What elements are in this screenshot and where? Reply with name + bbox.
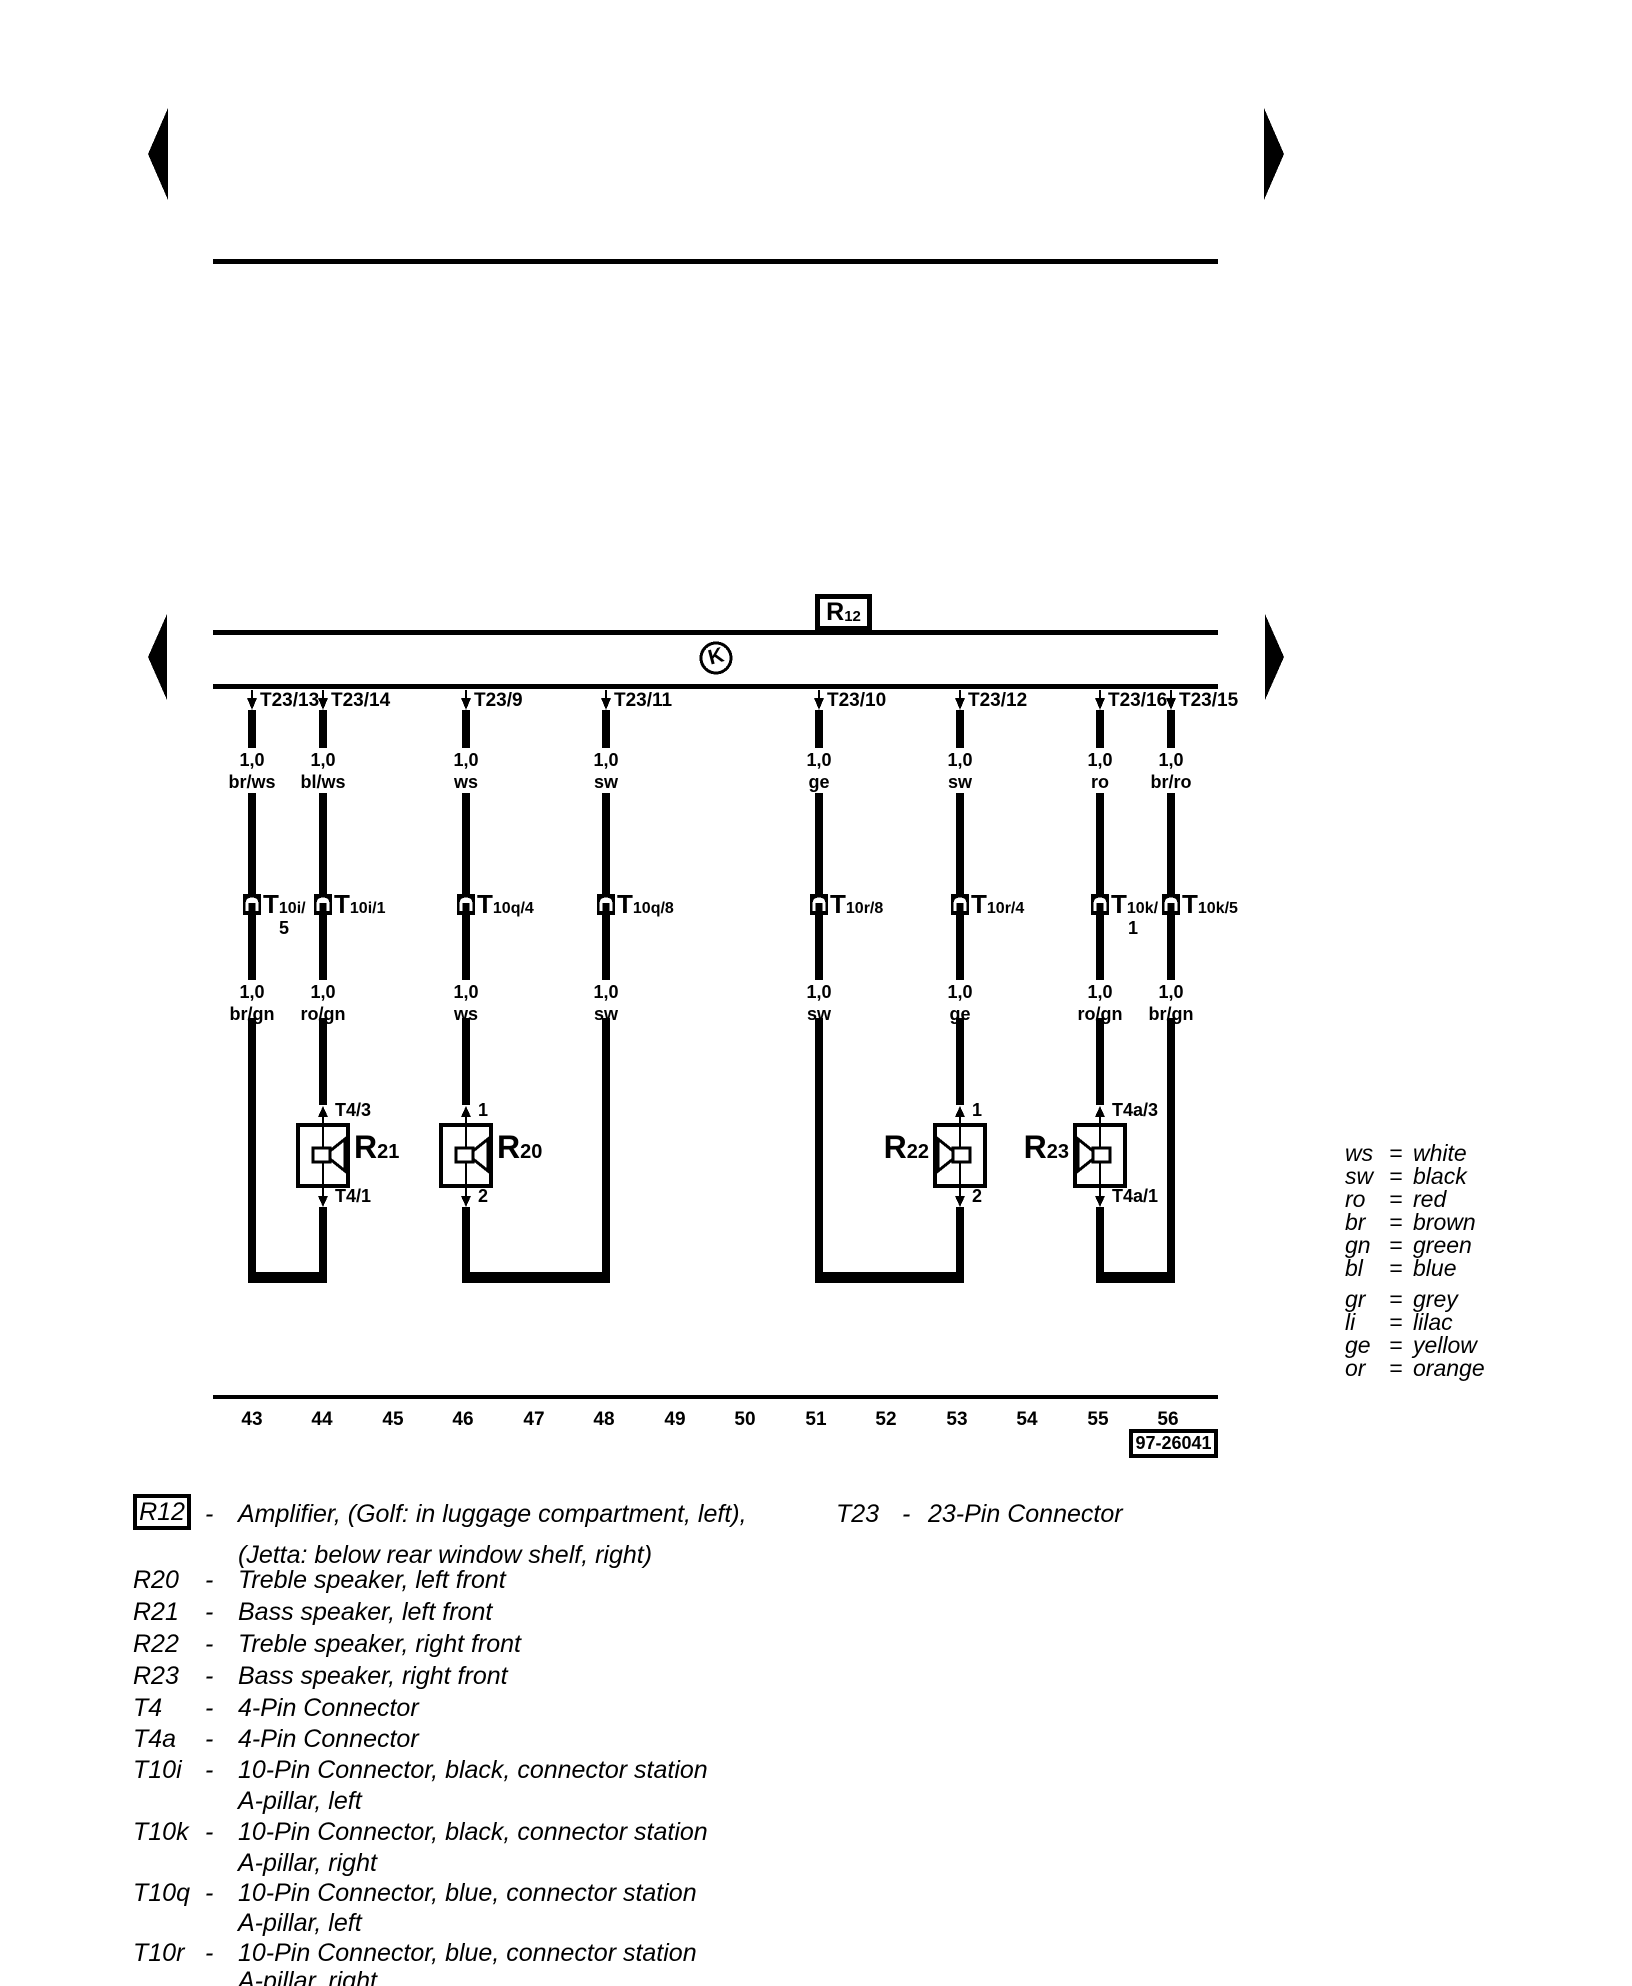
connector-label-prefix: T	[830, 889, 846, 919]
legend-dash: -	[205, 1696, 213, 1721]
connector-label: T10q/4	[477, 891, 534, 917]
wire-segment	[1167, 1018, 1175, 1283]
link-bar	[462, 1272, 610, 1283]
bottom-links	[248, 1272, 1175, 1283]
track-number: 51	[805, 1410, 826, 1429]
color-legend-row: ge=yellow	[1345, 1334, 1477, 1357]
wire-color: ge	[808, 773, 829, 791]
track-number: 48	[593, 1410, 614, 1429]
wire-gauge: 1,0	[239, 751, 264, 769]
speaker-name-r21: R21	[354, 1131, 399, 1163]
wiring-diagram-page: R12 K T23/13 T23/14 T23/9 T23/11 T23/10 …	[0, 0, 1632, 1986]
legend-dash: -	[205, 1820, 213, 1845]
wire-segment	[956, 1018, 964, 1105]
wire-gauge: 1,0	[806, 983, 831, 1001]
arrowhead-down-icon	[955, 1196, 965, 1207]
arrowhead-down-icon	[1095, 1196, 1105, 1207]
connector-t10k1-icon	[1091, 894, 1109, 915]
connector-t10q8-icon	[597, 894, 615, 915]
legend-key: R20	[133, 1568, 179, 1593]
pin-label: T23/12	[968, 691, 1027, 710]
legend-desc: A-pillar, right	[238, 1969, 377, 1986]
legend-dash: -	[205, 1568, 213, 1593]
color-name: green	[1413, 1234, 1472, 1257]
r12-sub: 12	[844, 609, 861, 624]
wire-segment	[1096, 1207, 1104, 1283]
wire-segment	[956, 915, 964, 980]
connector-label-rest: 10k/	[1127, 900, 1158, 917]
wire-color: ro/gn	[1078, 1005, 1123, 1023]
legend-key-r12-box: R12	[133, 1494, 191, 1530]
legend-dash: -	[205, 1632, 213, 1657]
connector-t10r4-icon	[951, 894, 969, 915]
track-number: 43	[241, 1410, 262, 1429]
legend-desc: 23-Pin Connector	[928, 1502, 1123, 1527]
wire-segment	[462, 1018, 470, 1105]
color-name: lilac	[1413, 1311, 1453, 1334]
connector-label-prefix: T	[971, 889, 987, 919]
speaker-name-sub: 22	[907, 1141, 929, 1163]
speaker-name-prefix: R	[1024, 1129, 1047, 1165]
equals-sign: =	[1389, 1165, 1413, 1188]
color-abbr: li	[1345, 1311, 1389, 1334]
arrowhead-down-icon	[247, 698, 257, 710]
speaker-pin-top: T4a/3	[1112, 1101, 1158, 1119]
color-name: grey	[1413, 1288, 1458, 1311]
legend-key: T10i	[133, 1758, 182, 1783]
equals-sign: =	[1389, 1142, 1413, 1165]
arrowhead-down-icon	[814, 698, 824, 710]
color-abbr: ge	[1345, 1334, 1389, 1357]
legend-key: T10r	[133, 1941, 184, 1966]
color-legend-row: br=brown	[1345, 1211, 1476, 1234]
track-number: 46	[452, 1410, 473, 1429]
speaker-name-prefix: R	[884, 1129, 907, 1165]
color-legend-row: bl=blue	[1345, 1257, 1456, 1280]
connector-t10q4-icon	[457, 894, 475, 915]
legend-dash: -	[205, 1727, 213, 1752]
legend-desc: A-pillar, right	[238, 1851, 377, 1876]
legend-key: T4	[133, 1696, 162, 1721]
wire-segment	[602, 915, 610, 980]
track-number: 53	[946, 1410, 967, 1429]
wire-segment	[815, 710, 823, 748]
legend-dash: -	[205, 1941, 213, 1966]
bus-arrow-left-icon	[148, 614, 167, 700]
connector-label-prefix: T	[263, 889, 279, 919]
equals-sign: =	[1389, 1234, 1413, 1257]
wire-color: ge	[949, 1005, 970, 1023]
pin-label: T23/11	[614, 691, 672, 710]
track-number: 47	[523, 1410, 544, 1429]
arrowhead-down-icon	[601, 698, 611, 710]
wire-color: ro	[1091, 773, 1109, 791]
track-number: 56	[1157, 1410, 1178, 1429]
equals-sign: =	[1389, 1288, 1413, 1311]
connector-t10k5-icon	[1162, 894, 1180, 915]
color-name: red	[1413, 1188, 1446, 1211]
color-name: yellow	[1413, 1334, 1477, 1357]
color-abbr: or	[1345, 1357, 1389, 1380]
wire-segment	[815, 793, 823, 894]
legend-dash: -	[205, 1664, 213, 1689]
bus-arrow-right-icon	[1265, 614, 1284, 700]
color-name: orange	[1413, 1357, 1485, 1380]
wire-segment	[1167, 710, 1175, 748]
legend-desc: Treble speaker, right front	[238, 1632, 521, 1657]
pin-label: T23/16	[1108, 691, 1167, 710]
color-abbr: sw	[1345, 1165, 1389, 1188]
wire-color: sw	[594, 1005, 618, 1023]
legend-dash: -	[205, 1502, 213, 1527]
legend-desc: 10-Pin Connector, blue, connector statio…	[238, 1941, 697, 1966]
speaker-pin-top: 1	[972, 1101, 982, 1119]
wire-color: ro/gn	[301, 1005, 346, 1023]
pin-label: T23/10	[827, 691, 886, 710]
track-number: 52	[875, 1410, 896, 1429]
wire-gauge: 1,0	[1158, 983, 1183, 1001]
connector-label: T10q/8	[617, 891, 674, 917]
color-name: black	[1413, 1165, 1467, 1188]
legend-desc: 10-Pin Connector, black, connector stati…	[238, 1758, 708, 1783]
wire-segment	[602, 793, 610, 894]
color-abbr: br	[1345, 1211, 1389, 1234]
color-abbr: ro	[1345, 1188, 1389, 1211]
wire-segment	[319, 710, 327, 748]
wire-gauge: 1,0	[239, 983, 264, 1001]
wire-color: br/gn	[230, 1005, 275, 1023]
wire-segment	[1096, 793, 1104, 894]
wire-segment	[462, 1207, 470, 1283]
color-name: blue	[1413, 1257, 1456, 1280]
color-name: white	[1413, 1142, 1467, 1165]
color-legend-row: or=orange	[1345, 1357, 1485, 1380]
equals-sign: =	[1389, 1188, 1413, 1211]
color-legend-row: li=lilac	[1345, 1311, 1453, 1334]
color-abbr: gn	[1345, 1234, 1389, 1257]
wire-gauge: 1,0	[310, 983, 335, 1001]
wire-segment	[319, 793, 327, 894]
wire-gauge: 1,0	[947, 983, 972, 1001]
wire-segment	[815, 1018, 823, 1283]
bus-line-top	[213, 630, 1218, 635]
legend-desc: (Jetta: below rear window shelf, right)	[238, 1543, 652, 1568]
legend-key: T4a	[133, 1727, 176, 1752]
connector-label: T10k/5	[1182, 891, 1238, 917]
legend-desc: Amplifier, (Golf: in luggage compartment…	[238, 1502, 747, 1527]
diagram-number-box: 97-26041	[1129, 1429, 1218, 1458]
connector-label: T10i/	[263, 891, 306, 917]
wire-color: sw	[948, 773, 972, 791]
wire-gauge: 1,0	[1158, 751, 1183, 769]
connector-label-rest: 10q/8	[633, 900, 674, 917]
amplifier-box-label: R12	[815, 594, 872, 631]
legend-key: R23	[133, 1664, 179, 1689]
wire-gauge: 1,0	[947, 751, 972, 769]
wire-segment	[462, 915, 470, 980]
wire-color: sw	[594, 773, 618, 791]
color-legend-row: gn=green	[1345, 1234, 1472, 1257]
wire-color: ws	[454, 773, 478, 791]
legend-desc: 10-Pin Connector, blue, connector statio…	[238, 1881, 697, 1906]
wire-color: sw	[807, 1005, 831, 1023]
wire-color: br/gn	[1149, 1005, 1194, 1023]
speaker-name-sub: 23	[1047, 1141, 1069, 1163]
speaker-name-prefix: R	[354, 1129, 377, 1165]
speaker-name-r22: R22	[884, 1131, 929, 1163]
wire-segment	[1096, 710, 1104, 748]
wire-gauge: 1,0	[1087, 983, 1112, 1001]
connector-label-prefix: T	[334, 889, 350, 919]
speaker-pin-top: 1	[478, 1101, 488, 1119]
connector-label-rest: 10r/8	[846, 900, 883, 917]
arrowhead-down-icon	[318, 1196, 328, 1207]
connector-label-prefix: T	[617, 889, 633, 919]
wire-segment	[815, 915, 823, 980]
legend-dash: -	[205, 1881, 213, 1906]
speaker-name-r23: R23	[1024, 1131, 1069, 1163]
arrowhead-down-icon	[955, 698, 965, 710]
track-number: 44	[311, 1410, 332, 1429]
speaker-name-prefix: R	[497, 1129, 520, 1165]
wire-color: ws	[454, 1005, 478, 1023]
wire-gauge: 1,0	[453, 983, 478, 1001]
wire-segment	[248, 915, 256, 980]
link-bar	[1096, 1272, 1175, 1283]
track-number: 55	[1087, 1410, 1108, 1429]
wire-segment	[319, 1018, 327, 1105]
legend-desc: A-pillar, left	[238, 1789, 362, 1814]
wire-segment	[602, 1018, 610, 1283]
equals-sign: =	[1389, 1311, 1413, 1334]
legend-dash: -	[205, 1600, 213, 1625]
legend-desc: A-pillar, left	[238, 1911, 362, 1936]
link-bar	[815, 1272, 964, 1283]
page-arrow-right-icon	[1264, 108, 1284, 200]
wire-segment	[319, 915, 327, 980]
speaker-name-sub: 20	[520, 1141, 542, 1163]
wire-segment	[319, 1207, 327, 1283]
connector-label: T10r/8	[830, 891, 883, 917]
legend-desc: 4-Pin Connector	[238, 1727, 419, 1752]
wire-gauge: 1,0	[593, 983, 618, 1001]
wire-segment	[602, 710, 610, 748]
legend-key: T10k	[133, 1820, 189, 1845]
legend-key: T23	[836, 1502, 879, 1527]
connector-label-below: 1	[1128, 919, 1138, 937]
color-legend-row: ws=white	[1345, 1142, 1467, 1165]
connector-label: T10k/	[1111, 891, 1158, 917]
speaker-pin-top: T4/3	[335, 1101, 371, 1119]
arrowhead-down-icon	[1166, 698, 1176, 710]
connector-label: T10i/1	[334, 891, 385, 917]
wire-segment	[956, 1207, 964, 1283]
connector-label: T10r/4	[971, 891, 1024, 917]
wire-segment	[1096, 1018, 1104, 1105]
arrowhead-down-icon	[461, 1196, 471, 1207]
color-abbr: ws	[1345, 1142, 1389, 1165]
speaker-name-sub: 21	[377, 1141, 399, 1163]
wire-segment	[1167, 793, 1175, 894]
connector-label-rest: 10q/4	[493, 900, 534, 917]
speaker-name-r20: R20	[497, 1131, 542, 1163]
speaker-pin-bottom: T4/1	[335, 1187, 371, 1205]
arrowhead-down-icon	[318, 698, 328, 710]
pin-label: T23/9	[474, 691, 523, 710]
wire-segment	[248, 1018, 256, 1283]
wire-gauge: 1,0	[453, 751, 478, 769]
legend-dash: -	[902, 1502, 910, 1527]
bus-line-bottom	[213, 684, 1218, 689]
speaker-pin-bottom: 2	[478, 1187, 488, 1205]
equals-sign: =	[1389, 1357, 1413, 1380]
connector-label-prefix: T	[477, 889, 493, 919]
track-number: 49	[664, 1410, 685, 1429]
connector-label-below: 5	[279, 919, 289, 937]
legend-desc: 4-Pin Connector	[238, 1696, 419, 1721]
wire-gauge: 1,0	[806, 751, 831, 769]
color-name: brown	[1413, 1211, 1476, 1234]
wire-segment	[1096, 915, 1104, 980]
diagram-number: 97-26041	[1135, 1433, 1211, 1454]
wire-color: br/ro	[1150, 773, 1191, 791]
pin-label: T23/13	[260, 691, 319, 710]
legend-desc: Bass speaker, left front	[238, 1600, 492, 1625]
page-arrow-left-icon	[148, 108, 168, 200]
legend-key: R22	[133, 1632, 179, 1657]
pin-label: T23/15	[1179, 691, 1238, 710]
connector-label-rest: 10r/4	[987, 900, 1024, 917]
connector-t10i1-icon	[314, 894, 332, 915]
color-abbr: bl	[1345, 1257, 1389, 1280]
legend-desc: Bass speaker, right front	[238, 1664, 508, 1689]
connector-label-rest: 10k/5	[1198, 900, 1238, 917]
legend-key: R21	[133, 1600, 179, 1625]
equals-sign: =	[1389, 1257, 1413, 1280]
equals-sign: =	[1389, 1334, 1413, 1357]
wire-segment	[248, 710, 256, 748]
legend-dash: -	[205, 1758, 213, 1783]
legend-desc: 10-Pin Connector, black, connector stati…	[238, 1820, 708, 1845]
wire-gauge: 1,0	[310, 751, 335, 769]
link-bar	[248, 1272, 327, 1283]
wire-segment	[462, 793, 470, 894]
color-legend-row: ro=red	[1345, 1188, 1446, 1211]
color-legend-row: sw=black	[1345, 1165, 1467, 1188]
legend-key: T10q	[133, 1881, 190, 1906]
wire-segment	[956, 710, 964, 748]
speaker-pin-bottom: T4a/1	[1112, 1187, 1158, 1205]
connector-t10i5-icon	[243, 894, 261, 915]
wire-segment	[248, 793, 256, 894]
legend-desc: Treble speaker, left front	[238, 1568, 506, 1593]
connector-t10r8-icon	[810, 894, 828, 915]
wire-gauge: 1,0	[1087, 751, 1112, 769]
color-legend-row: gr=grey	[1345, 1288, 1458, 1311]
connector-label-rest: 10i/	[279, 900, 306, 917]
r12-prefix: R	[826, 600, 844, 625]
wire-color: bl/ws	[300, 773, 345, 791]
wire-color: br/ws	[228, 773, 275, 791]
arrowhead-down-icon	[1095, 698, 1105, 710]
equals-sign: =	[1389, 1211, 1413, 1234]
track-number: 45	[382, 1410, 403, 1429]
connector-label-prefix: T	[1111, 889, 1127, 919]
wire-segment	[1167, 915, 1175, 980]
header-rule	[213, 259, 1218, 264]
arrowhead-down-icon	[461, 698, 471, 710]
connector-label-prefix: T	[1182, 889, 1198, 919]
pin-label: T23/14	[331, 691, 390, 710]
wire-segment	[462, 710, 470, 748]
track-rule	[213, 1395, 1218, 1399]
track-number: 50	[734, 1410, 755, 1429]
wire-gauge: 1,0	[593, 751, 618, 769]
speaker-pin-bottom: 2	[972, 1187, 982, 1205]
track-number: 54	[1016, 1410, 1037, 1429]
wire-segment	[956, 793, 964, 894]
connector-label-rest: 10i/1	[350, 900, 386, 917]
legend-key: R12	[139, 1500, 185, 1525]
color-abbr: gr	[1345, 1288, 1389, 1311]
